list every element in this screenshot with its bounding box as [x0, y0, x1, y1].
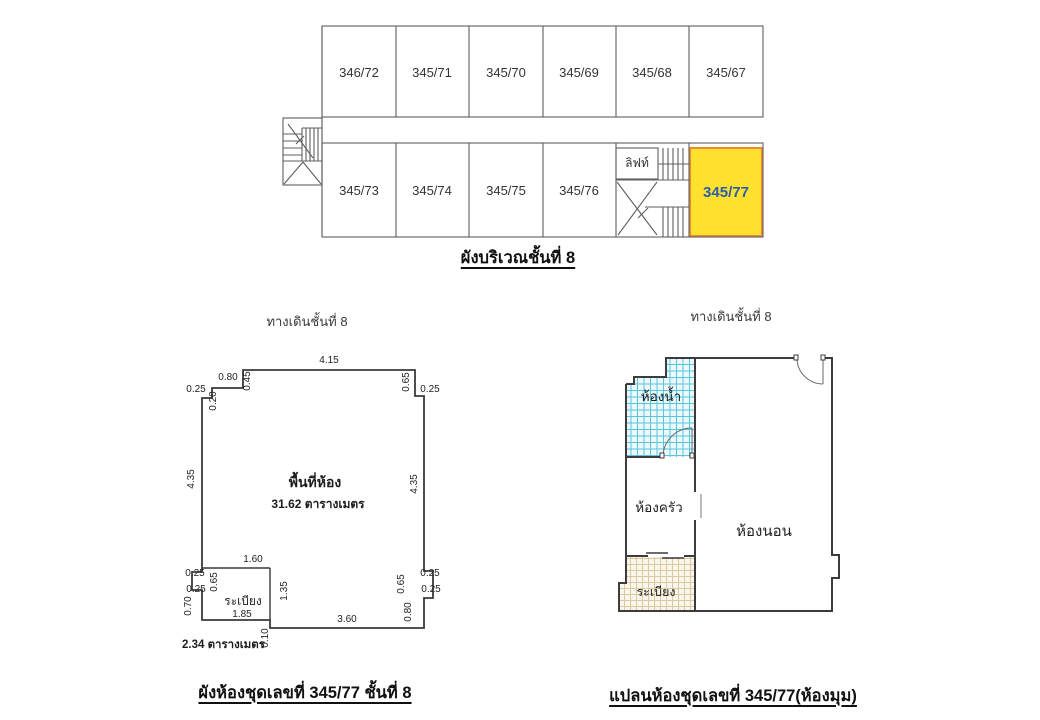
dim-label: 0.45: [242, 371, 253, 391]
dim-label: 4.15: [319, 355, 339, 366]
building-floor-plan: 346/72 345/71 345/70 345/69 345/68 345/6…: [283, 26, 763, 237]
bathroom-label: ห้องน้ำ: [641, 386, 681, 404]
lift-label: ลิฟท์: [625, 156, 649, 170]
dim-label: 4.35: [186, 469, 197, 489]
walkway-label-right: ทางเดินชั้นที่ 8: [690, 306, 771, 327]
room-layout-plan: ห้องน้ำ ห้องครัว ห้องนอน ระเบียง: [619, 355, 839, 611]
dim-label: 0.25: [186, 584, 206, 595]
unit-label: 345/67: [706, 65, 746, 80]
dim-label: 0.65: [401, 372, 412, 392]
dimension-plan-caption: ผังห้องชุดเลขที่ 345/77 ชั้นที่ 8: [198, 680, 411, 706]
dim-label: 0.70: [183, 596, 194, 616]
unit-label: 345/69: [559, 65, 599, 80]
dim-label: 0.80: [218, 372, 238, 383]
unit-label: 345/74: [412, 183, 452, 198]
dim-label: 4.35: [409, 474, 420, 494]
dim-label: 0.25: [186, 384, 206, 395]
balcony-area-value: 2.34 ตารางเมตร: [182, 639, 266, 651]
dim-label: 1.85: [232, 609, 252, 620]
balcony-label: ระเบียง: [224, 594, 262, 608]
kitchen-label: ห้องครัว: [635, 500, 682, 515]
dim-label: 3.60: [337, 614, 357, 625]
building-plan-caption: ผังบริเวณชั้นที่ 8: [461, 245, 575, 271]
room-area-title: พื้นที่ห้อง: [289, 471, 342, 490]
dim-label: 0.25: [421, 584, 441, 595]
unit-label: 346/72: [339, 65, 379, 80]
dim-label: 0.25: [420, 568, 440, 579]
dim-label: 0.65: [396, 574, 407, 594]
dim-label: 0.65: [209, 572, 220, 592]
dim-label: 0.25: [420, 384, 440, 395]
unit-label: 345/75: [486, 183, 526, 198]
unit-label: 345/76: [559, 183, 599, 198]
bedroom-label: ห้องนอน: [736, 523, 792, 540]
dim-label: 0.20: [208, 391, 219, 411]
dim-label: 0.80: [403, 602, 414, 622]
unit-label: 345/71: [412, 65, 452, 80]
balcony-room-label: ระเบียง: [636, 585, 675, 599]
bathroom-hatch-area: [627, 358, 694, 457]
dim-label: 1.60: [243, 554, 263, 565]
dim-label: 1.35: [279, 581, 290, 601]
walkway-label-left: ทางเดินชั้นที่ 8: [266, 311, 347, 332]
room-area-value: 31.62 ตารางเมตร: [271, 497, 365, 511]
floor-plan-drawing: 346/72 345/71 345/70 345/69 345/68 345/6…: [0, 0, 1040, 720]
unit-label: 345/68: [632, 65, 672, 80]
unit-dimension-plan: 4.15 0.80 0.45 0.25 0.20 4.35 0.65 0.25 …: [182, 355, 441, 651]
unit-label: 345/73: [339, 183, 379, 198]
floor-plan-document: 346/72 345/71 345/70 345/69 345/68 345/6…: [0, 0, 1040, 720]
dim-label: 0.25: [185, 568, 205, 579]
balcony-hatch-area: [620, 557, 694, 610]
unit-numbers: 346/72 345/71 345/70 345/69 345/68 345/6…: [339, 65, 749, 201]
highlighted-unit-label: 345/77: [703, 184, 749, 201]
entry-door-swing: [797, 358, 823, 384]
layout-plan-caption: แปลนห้องชุดเลขที่ 345/77(ห้องมุม): [609, 683, 857, 709]
unit-label: 345/70: [486, 65, 526, 80]
